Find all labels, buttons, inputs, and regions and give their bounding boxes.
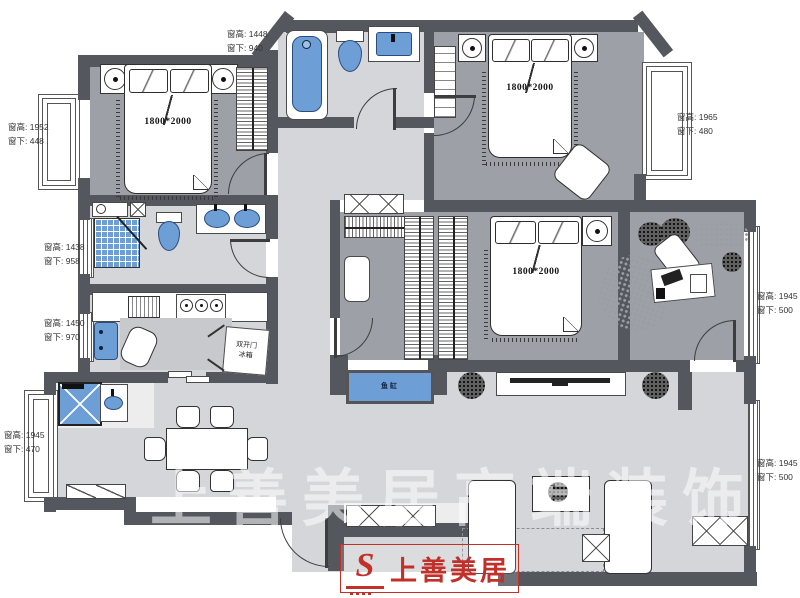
dining-chair — [210, 470, 234, 492]
drain-icon — [99, 330, 103, 334]
wall-segment — [130, 512, 292, 525]
pillow — [170, 69, 209, 93]
burner-icon — [195, 299, 208, 312]
faucet-icon — [391, 34, 395, 42]
wall-segment — [744, 546, 756, 576]
annotation-line: 窗高: 1945 — [4, 428, 45, 442]
fridge: 双开门 冰箱 — [222, 326, 270, 376]
window-annotation-win-left-bedroom1: 窗高: 1952窗下: 448 — [8, 120, 49, 148]
window-annotation-win-top-bathroom: 窗高: 1448窗下: 940 — [227, 27, 268, 55]
bed-double: 1800*2000 — [124, 64, 212, 194]
window-annotation-win-left-dining: 窗高: 1945窗下: 470 — [4, 428, 45, 456]
door-leaf — [334, 318, 337, 358]
door-leaf — [264, 153, 267, 195]
porch-cabinet — [346, 505, 436, 527]
utility-sink — [104, 396, 123, 410]
laundry-box — [130, 202, 146, 217]
window-annotation-win-right-living: 窗高: 1945窗下: 500 — [757, 456, 798, 484]
pillow — [492, 39, 530, 62]
door-leaf — [393, 88, 396, 130]
window-annotation-win-right-bedroom2: 窗高: 1965窗下: 480 — [677, 110, 718, 138]
wall-segment — [266, 195, 278, 239]
annotation-line: 窗下: 500 — [757, 303, 798, 317]
bed-double: 1800*2000 — [490, 216, 582, 336]
clothes-rack — [344, 216, 408, 238]
window-annotation-win-left-kitchen: 窗高: 1450窗下: 970 — [44, 316, 85, 344]
wall-segment — [78, 55, 90, 100]
wall-segment — [396, 117, 434, 128]
annotation-line: 窗高: 1952 — [8, 120, 49, 134]
wall-segment — [505, 572, 757, 586]
pebble-decor — [694, 222, 748, 248]
bed-size-label: 1800*2000 — [491, 267, 581, 277]
wall-segment — [78, 206, 90, 220]
dining-chair — [176, 406, 200, 428]
faucet-icon — [214, 204, 217, 211]
pillow — [538, 221, 579, 244]
bed-size-label: 1800*2000 — [125, 117, 211, 127]
dining-table — [166, 428, 248, 470]
shoe-cabinet — [66, 484, 126, 499]
dining-chair — [176, 470, 200, 492]
room-hallway — [278, 200, 330, 372]
drying-rack — [128, 296, 160, 318]
faucet-icon — [244, 204, 247, 211]
window-annotation-win-right-study: 窗高: 1945窗下: 500 — [757, 289, 798, 317]
bed-double: 1800*2000 — [488, 34, 572, 158]
shower — [94, 218, 140, 268]
wall-segment — [447, 360, 690, 372]
bathtub-faucet-icon — [302, 40, 311, 49]
annotation-line: 窗高: 1450 — [44, 316, 85, 330]
wall-segment — [736, 360, 756, 372]
annotation-line: 窗下: 448 — [8, 134, 49, 148]
brand-name: 上善美居 — [390, 549, 510, 588]
sofa-seat — [604, 480, 652, 574]
sink — [204, 209, 230, 228]
room-foyer — [278, 117, 424, 200]
pc-tower-icon — [690, 274, 707, 293]
dining-chair — [210, 406, 234, 428]
burner-icon — [180, 299, 193, 312]
door-leaf — [230, 239, 270, 242]
annotation-line: 窗下: 470 — [4, 442, 45, 456]
clothes-rack — [438, 216, 468, 360]
wall-segment — [330, 200, 340, 318]
wardrobe-rack — [236, 67, 268, 151]
nightstand-lamp-icon — [570, 34, 598, 62]
wall-segment — [78, 274, 90, 314]
plant-icon — [722, 252, 742, 272]
fish-tank-label: 鱼缸 — [349, 381, 431, 391]
annotation-line: 窗下: 940 — [227, 41, 268, 55]
sink — [234, 209, 260, 228]
faucet-icon — [111, 389, 114, 396]
dining-chair — [246, 437, 268, 461]
nightstand-lamp-icon — [208, 64, 238, 94]
wall-segment — [278, 20, 638, 32]
blanket-fold — [563, 317, 578, 332]
brand-logo-mark-icon: S — [346, 548, 384, 589]
rug-fringe — [482, 72, 486, 168]
rug-fringe — [116, 100, 120, 200]
clothes-rack — [404, 216, 434, 360]
wall-segment — [678, 372, 692, 410]
drain-icon — [99, 346, 103, 350]
blanket-fold — [193, 175, 208, 190]
corner-cabinet — [692, 516, 748, 546]
annotation-line: 窗高: 1945 — [757, 289, 798, 303]
nightstand-lamp-icon — [458, 34, 486, 62]
door-arc-entry — [280, 518, 329, 567]
pillow — [531, 39, 569, 62]
tv-stand-icon — [552, 383, 568, 386]
fish-tank: 鱼缸 — [346, 370, 434, 404]
annotation-line: 窗下: 500 — [757, 470, 798, 484]
rug-fringe — [484, 250, 488, 342]
annotation-line: 窗下: 970 — [44, 330, 85, 344]
washer-handle-icon — [62, 384, 84, 389]
kitchen-sink — [94, 322, 118, 360]
annotation-line: 窗下: 480 — [677, 124, 718, 138]
desk-item — [656, 288, 665, 299]
window-annotation-win-left-bathroom2: 窗高: 1438窗下: 958 — [44, 240, 85, 268]
bed-size-label: 1800*2000 — [489, 83, 571, 93]
fridge-label: 双开门 冰箱 — [223, 327, 269, 374]
rug-fringe — [492, 338, 580, 342]
wall-segment — [44, 383, 56, 395]
door-leaf — [733, 320, 736, 362]
sliding-door-panel — [186, 376, 210, 383]
pillow — [495, 221, 536, 244]
door-leaf — [434, 95, 476, 98]
pillow — [129, 69, 168, 93]
dining-chair — [144, 437, 166, 461]
annotation-line: 窗高: 1945 — [757, 456, 798, 470]
brand-logo: S 上善美居 — [340, 544, 519, 593]
annotation-line: 窗高: 1448 — [227, 27, 268, 41]
nightstand-lamp-icon — [582, 216, 612, 246]
rug-fringe — [214, 100, 218, 200]
closet-cabinet — [344, 194, 404, 214]
shelf-bowl-icon — [96, 204, 106, 214]
table-decor-icon — [548, 482, 568, 502]
annotation-line: 窗高: 1965 — [677, 110, 718, 124]
dresser — [344, 256, 370, 302]
rug-fringe — [120, 196, 216, 200]
wall-segment — [424, 32, 434, 93]
door-leaf — [325, 518, 328, 568]
plant-icon — [642, 372, 669, 399]
floor-plan: 1800*2000 1800*2000 1800*2000 — [0, 0, 800, 598]
side-table — [582, 534, 610, 562]
blanket-fold — [553, 139, 568, 154]
plant-icon — [458, 372, 485, 399]
wall-segment — [424, 200, 756, 212]
annotation-line: 窗高: 1438 — [44, 240, 85, 254]
wall-segment — [78, 358, 90, 374]
annotation-line: 窗下: 958 — [44, 254, 85, 268]
burner-icon — [210, 299, 223, 312]
